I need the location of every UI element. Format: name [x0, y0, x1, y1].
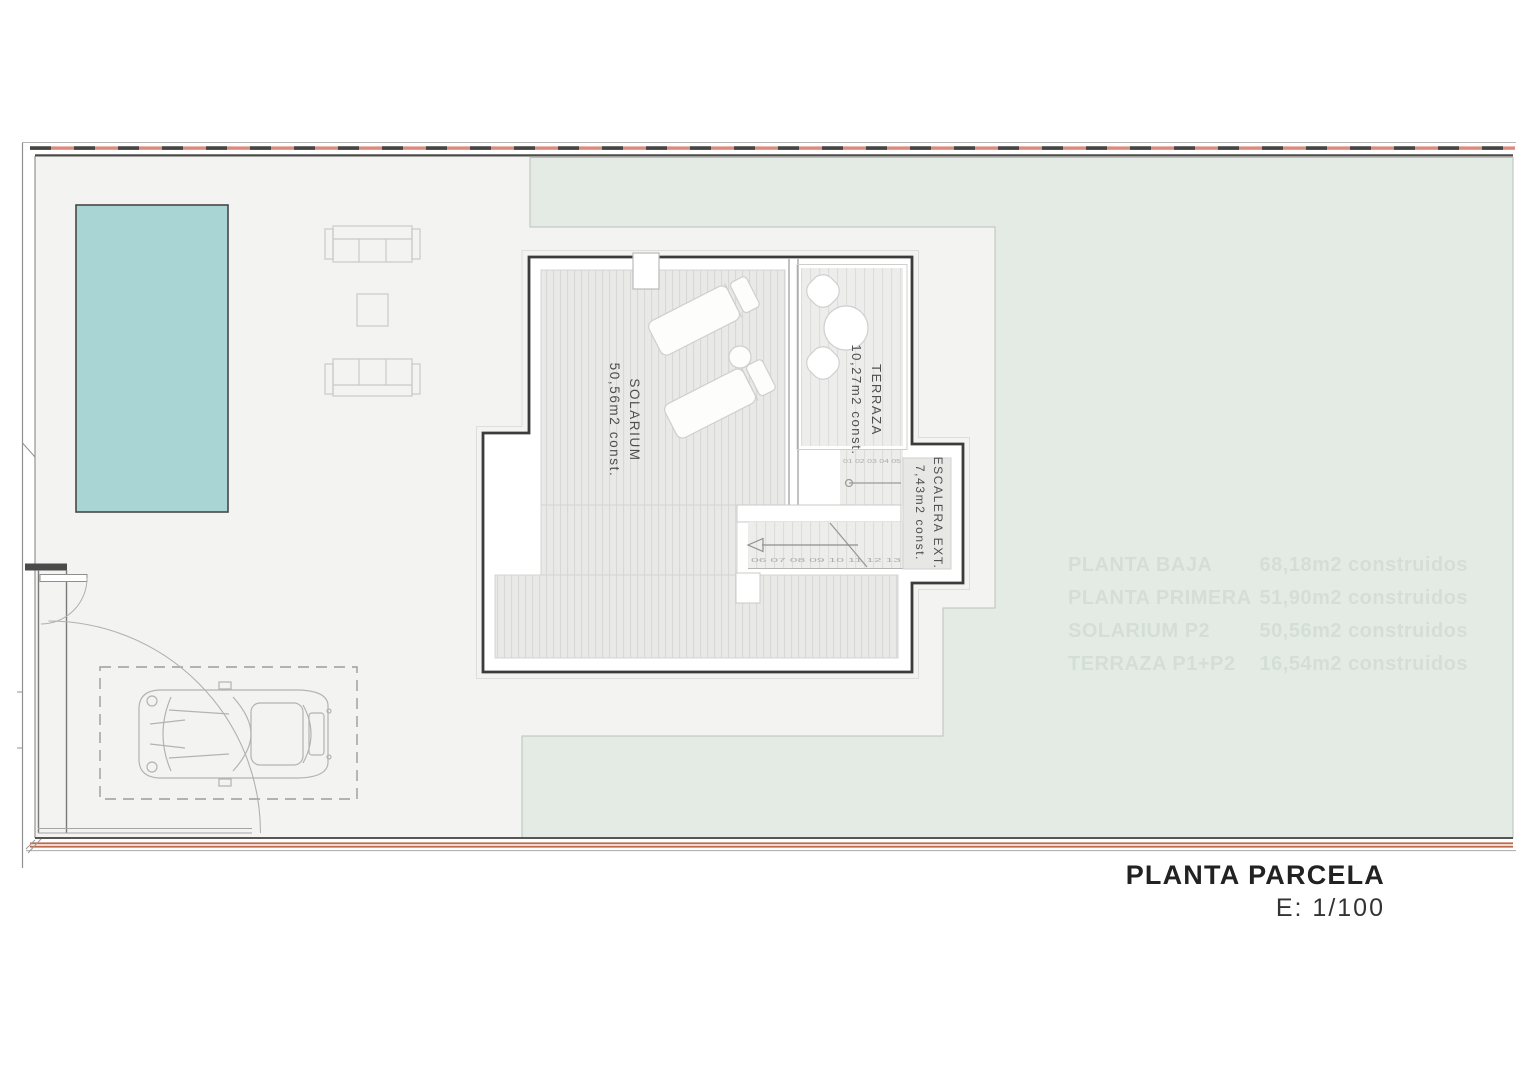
ghost-row-value: 68,18m2 construidos — [1260, 554, 1468, 577]
bottom-boundary — [26, 838, 1516, 853]
terraza-label-name: TERRAZA — [867, 325, 887, 475]
escalera-label-area: 7,43m2 const. — [911, 448, 929, 578]
ghost-row-value: 16,54m2 construidos — [1260, 653, 1468, 676]
ghost-area-table: PLANTA BAJA 68,18m2 construidos PLANTA P… — [1068, 549, 1468, 681]
ghost-row: PLANTA PRIMERA 51,90m2 construidos — [1068, 582, 1468, 615]
page-title: PLANTA PARCELA — [1126, 860, 1385, 891]
left-boundary — [17, 143, 35, 868]
ghost-row-value: 51,90m2 construidos — [1260, 587, 1468, 610]
solarium-label: SOLARIUM 50,56m2 const. — [600, 338, 644, 502]
terraza-label: TERRAZA 10,27m2 const. — [846, 325, 886, 475]
ghost-row-label: PLANTA PRIMERA — [1068, 587, 1260, 610]
escalera-label-name: ESCALERA EXT. — [929, 448, 947, 578]
ghost-row-label: SOLARIUM P2 — [1068, 620, 1260, 643]
ghost-row: TERRAZA P1+P2 16,54m2 construidos — [1068, 648, 1468, 681]
solarium-label-name: SOLARIUM — [624, 338, 644, 502]
pedestrian-gate-leaf — [40, 575, 87, 582]
top-boundary — [22, 143, 1516, 156]
stair-skylight-box — [736, 573, 760, 603]
solarium-label-area: 50,56m2 const. — [604, 338, 624, 502]
floor-plan-sheet: 01 02 03 04 05 06 07 08 09 10 11 12 13 — [0, 0, 1527, 1080]
ghost-row: SOLARIUM P2 50,56m2 construidos — [1068, 615, 1468, 648]
scale-label: E: 1/100 — [1126, 894, 1385, 923]
ghost-row: PLANTA BAJA 68,18m2 construidos — [1068, 549, 1468, 582]
terraza-label-area: 10,27m2 const. — [847, 325, 867, 475]
swimming-pool — [76, 205, 228, 512]
escalera-label: ESCALERA EXT. 7,43m2 const. — [907, 448, 947, 578]
title-block: PLANTA PARCELA E: 1/100 — [1126, 860, 1385, 923]
lounger-side-table — [729, 346, 751, 368]
ghost-row-label: TERRAZA P1+P2 — [1068, 653, 1260, 676]
ghost-row-label: PLANTA BAJA — [1068, 554, 1260, 577]
ghost-row-value: 50,56m2 construidos — [1260, 620, 1468, 643]
chimney-box — [633, 253, 659, 289]
lower-step-numbers: 06 07 08 09 10 11 12 13 — [751, 558, 901, 564]
stair-landing — [737, 505, 901, 522]
